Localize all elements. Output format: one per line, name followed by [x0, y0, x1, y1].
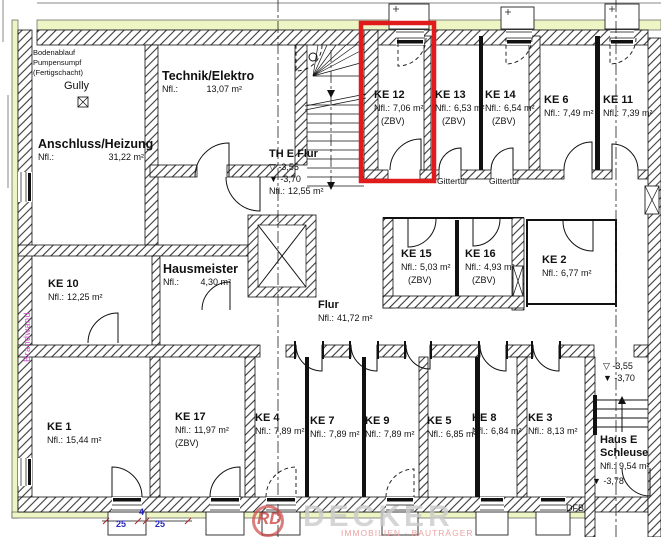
- room-label-ke10: KE 10 Nfl.:12,25 m²: [48, 278, 103, 303]
- watermark-subtitle: IMMOBILIEN · BAUTRÄGER: [341, 528, 474, 537]
- gully-symbol: [78, 97, 88, 107]
- room-label-th-e-flur: TH E Flur ▽ -3,55 ▼ -3,70 Nfl.:12,55 m²: [269, 148, 324, 197]
- dimension-middle: 4: [139, 507, 144, 517]
- bodenablauf-note: Bodenablauf Pumpensumpf (Fertigschacht): [33, 48, 83, 78]
- room-label-ke2: KE 2 Nfl.:6,77 m²: [542, 254, 592, 279]
- room-label-ke8: KE 8 Nfl.:6,84 m²: [472, 412, 522, 437]
- room-label-ke16: KE 16 Nfl.:4,93 m² (ZBV): [465, 248, 515, 287]
- haus-e-steps: [593, 395, 648, 435]
- room-label-ke11: KE 11 Nfl.:7,39 m²: [603, 94, 653, 119]
- room-label-ke5: KE 5 Nfl.:6,85 m²: [427, 415, 477, 440]
- dimension-left: 25: [116, 519, 126, 529]
- room-label-ke3: KE 3 Nfl.:8,13 m²: [528, 412, 578, 437]
- room-label-technik-elektro: Technik/Elektro Nfl.:13,07 m²: [162, 70, 242, 95]
- floor-plan: Bodenablauf Pumpensumpf (Fertigschacht) …: [0, 0, 661, 537]
- dfb-label: DFB: [566, 503, 584, 513]
- haus-e-level-markers-top: ▽ -3,55 ▼ -3,70: [603, 360, 635, 384]
- room-label-ke17: KE 17 Nfl.:11,97 m² (ZBV): [175, 411, 229, 450]
- dimension-right: 25: [155, 519, 165, 529]
- room-label-haus-e-schleuse: Haus E Schleuse Nfl.:9,54 m² ▼ -3,78: [600, 434, 650, 487]
- room-label-ke7: KE 7 Nfl.:7,89 m²: [310, 415, 360, 440]
- watermark-monogram: RD: [257, 509, 282, 529]
- room-label-ke6: KE 6 Nfl.:7,49 m²: [544, 94, 594, 119]
- brandwand-label: Brandwand: [22, 312, 32, 362]
- room-label-ke9: KE 9 Nfl.:7,89 m²: [365, 415, 415, 440]
- room-label-hausmeister: Hausmeister Nfl.:4,30 m²: [163, 263, 231, 288]
- room-label-ke1: KE 1 Nfl.:15,44 m²: [47, 421, 102, 446]
- room-label-ke4: KE 4 Nfl.:7,89 m²: [255, 412, 305, 437]
- room-label-ke14: KE 14 Nfl.:6,54 m² (ZBV): [485, 89, 535, 128]
- elevator-shaft: [248, 215, 316, 297]
- room-label-flur: Flur Nfl.:41,72 m²: [318, 299, 373, 324]
- room-label-ke13: KE 13 Nfl.:6,53 m² (ZBV): [435, 89, 485, 128]
- gittertuer-label-2: Gittertür: [489, 176, 520, 186]
- room-label-ke12: KE 12 Nfl.:7,06 m² (ZBV): [374, 89, 424, 128]
- gittertuer-label-1: Gittertür: [437, 176, 468, 186]
- gully-label: Gully: [64, 80, 89, 92]
- room-label-ke15: KE 15 Nfl.:5,03 m² (ZBV): [401, 248, 451, 287]
- room-label-anschluss-heizung: Anschluss/Heizung Nfl.:31,22 m²: [38, 138, 144, 163]
